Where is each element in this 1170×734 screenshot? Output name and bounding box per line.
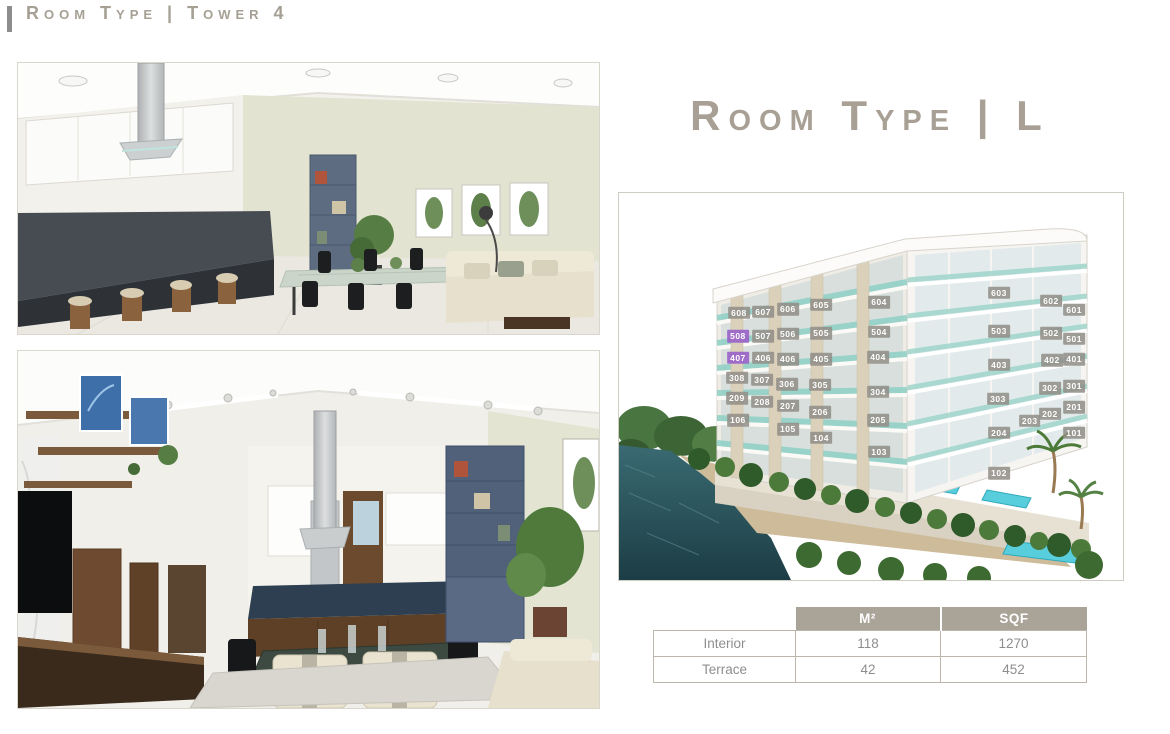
table-row: Terrace42452	[654, 657, 1087, 683]
interior-render-top	[17, 62, 600, 335]
unit-label-301: 301	[1063, 380, 1085, 393]
unit-label-406: 406	[777, 353, 799, 366]
row-value: 42	[796, 657, 941, 683]
unit-label-303: 303	[987, 393, 1009, 406]
unit-label-608: 608	[728, 307, 750, 320]
unit-label-405: 405	[810, 353, 832, 366]
unit-label-504: 504	[868, 326, 890, 339]
bookshelf	[310, 155, 356, 277]
unit-label-508: 508	[727, 330, 749, 343]
unit-label-505: 505	[810, 327, 832, 340]
unit-label-208: 208	[751, 396, 773, 409]
unit-label-403: 403	[988, 359, 1010, 372]
bookshelf	[446, 446, 524, 642]
unit-label-607: 607	[752, 306, 774, 319]
m2-header-cell: M²	[796, 607, 941, 631]
unit-label-601: 601	[1063, 304, 1085, 317]
unit-label-201: 201	[1063, 401, 1085, 414]
unit-label-105: 105	[777, 423, 799, 436]
unit-label-206: 206	[809, 406, 831, 419]
unit-label-209: 209	[726, 392, 748, 405]
unit-label-603: 603	[988, 287, 1010, 300]
unit-label-202: 202	[1039, 408, 1061, 421]
row-value: 452	[941, 657, 1087, 683]
unit-label-304: 304	[867, 386, 889, 399]
row-label: Terrace	[654, 657, 796, 683]
unit-label-401: 401	[1063, 353, 1085, 366]
unit-label-102: 102	[988, 467, 1010, 480]
unit-label-204: 204	[988, 427, 1010, 440]
unit-label-604: 604	[868, 296, 890, 309]
unit-label-305: 305	[809, 379, 831, 392]
unit-label-307: 307	[751, 374, 773, 387]
unit-label-407: 407	[727, 352, 749, 365]
table-row: Interior1181270	[654, 631, 1087, 657]
unit-label-502: 502	[1040, 327, 1062, 340]
unit-label-507: 507	[752, 330, 774, 343]
header-accent-bar	[7, 6, 12, 32]
corner-header-cell	[654, 607, 796, 631]
unit-labels-layer: 6086076066056046036026015085075065055045…	[619, 193, 1123, 580]
row-value: 1270	[941, 631, 1087, 657]
interior-scene-1	[18, 63, 599, 334]
unit-label-503: 503	[988, 325, 1010, 338]
room-type-title: Room Type | L	[618, 92, 1122, 140]
unit-label-605: 605	[810, 299, 832, 312]
tv-screen	[18, 491, 72, 613]
unit-label-406: 406	[752, 352, 774, 365]
page-title: Room Type | Tower 4	[26, 3, 289, 24]
sqf-header-cell: SQF	[941, 607, 1087, 631]
unit-label-308: 308	[726, 372, 748, 385]
unit-label-106: 106	[727, 414, 749, 427]
unit-label-402: 402	[1041, 354, 1063, 367]
unit-label-205: 205	[867, 414, 889, 427]
unit-label-404: 404	[867, 351, 889, 364]
unit-label-104: 104	[810, 432, 832, 445]
interior-render-bottom	[17, 350, 600, 709]
interior-scene-2	[18, 351, 599, 708]
unit-label-306: 306	[776, 378, 798, 391]
row-value: 118	[796, 631, 941, 657]
unit-label-501: 501	[1063, 333, 1085, 346]
unit-label-302: 302	[1039, 382, 1061, 395]
area-table-body: Interior1181270Terrace42452	[654, 631, 1087, 683]
unit-label-606: 606	[777, 303, 799, 316]
unit-label-101: 101	[1063, 427, 1085, 440]
brochure-page: Room Type | Tower 4	[0, 0, 1170, 734]
unit-label-506: 506	[777, 328, 799, 341]
row-label: Interior	[654, 631, 796, 657]
sofa	[446, 251, 594, 329]
unit-label-602: 602	[1040, 295, 1062, 308]
unit-label-103: 103	[868, 446, 890, 459]
area-table: M² SQF Interior1181270Terrace42452	[653, 607, 1087, 683]
unit-label-203: 203	[1019, 415, 1041, 428]
unit-label-207: 207	[777, 400, 799, 413]
building-render-panel: 6086076066056046036026015085075065055045…	[618, 192, 1124, 581]
table-header-row: M² SQF	[654, 607, 1087, 631]
